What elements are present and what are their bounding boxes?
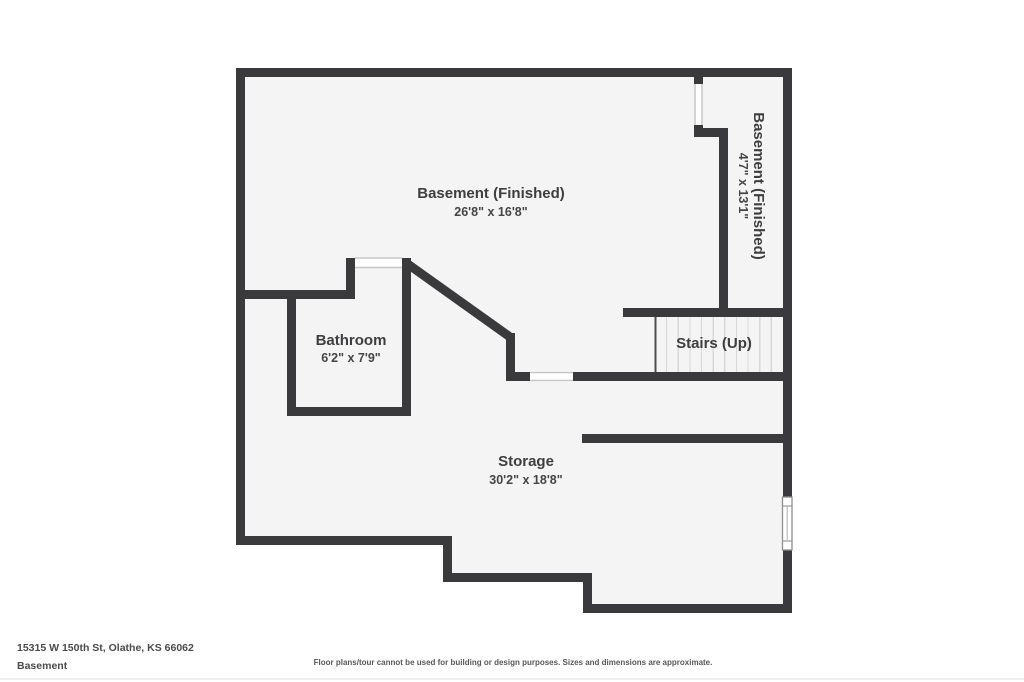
room-dims-basement-side: 4'7" x 13'1" [736, 153, 750, 220]
room-label-stairs: Stairs (Up) [676, 335, 752, 352]
wall-outer-left [236, 68, 245, 545]
wall-hall-stub [346, 258, 355, 299]
wall-outer-bottom-right [583, 604, 792, 613]
wall-outer-bottom-left [236, 536, 452, 545]
footer-address: 15315 W 150th St, Olathe, KS 66062 [17, 642, 194, 654]
floor-plan-image: Basement (Finished) 26'8" x 16'8" Baseme… [0, 0, 1024, 682]
wall-door-stub-bottom [694, 124, 703, 137]
floorplan-page: Basement (Finished) 26'8" x 16'8" Baseme… [0, 0, 1024, 682]
window-symbol [783, 497, 793, 550]
wall-bathroom-left [287, 290, 296, 416]
room-label-storage: Storage [498, 453, 554, 470]
wall-stairs-top [623, 308, 783, 317]
footer: 15315 W 150th St, Olathe, KS 66062 Basem… [17, 642, 712, 672]
wall-stairs-bottom-right [573, 372, 783, 381]
wall-bathroom-right [402, 258, 411, 416]
room-label-basement-side: Basement (Finished) [750, 112, 767, 260]
wall-stairs-bottom-left [506, 372, 530, 381]
room-label-basement-main: Basement (Finished) [417, 185, 565, 202]
wall-corridor-left [719, 128, 728, 317]
wall-storage-right [582, 434, 783, 443]
footer-disclaimer: Floor plans/tour cannot be used for buil… [314, 658, 713, 667]
room-dims-bathroom: 6'2" x 7'9" [321, 351, 381, 365]
wall-bathroom-bottom [287, 407, 411, 416]
wall-door-stub-top [694, 68, 703, 84]
wall-outer-top [236, 68, 792, 77]
footer-floor-label: Basement [17, 660, 68, 672]
room-dims-storage: 30'2" x 18'8" [489, 473, 562, 487]
room-label-bathroom: Bathroom [316, 332, 387, 349]
wall-step-horizontal [443, 573, 592, 582]
room-dims-basement-main: 26'8" x 16'8" [454, 205, 527, 219]
